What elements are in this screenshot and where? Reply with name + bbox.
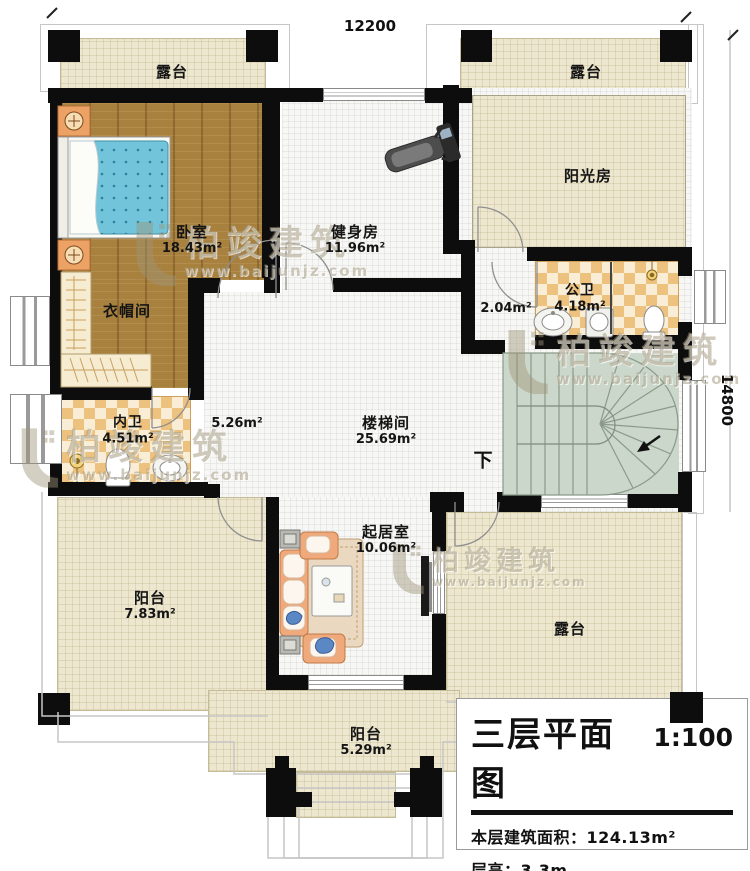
terrace-bottom-right-floor [446, 512, 682, 702]
room-area: 4.51m² [102, 432, 153, 448]
room-label-public-bath: 公卫 4.18m² [554, 283, 605, 316]
room-area: 2.04m² [480, 301, 531, 317]
balcony-bottom-floor [208, 690, 460, 772]
wall-hall-left [461, 254, 475, 354]
room-name: 露台 [554, 620, 586, 638]
wall-stair-bottom-mid [497, 492, 541, 512]
title-row: 三层平面图 1:100 [471, 707, 733, 815]
room-label-corridor-area: 5.26m² [211, 416, 262, 432]
room-area: 5.29m² [340, 743, 391, 759]
floor-area-row: 本层建筑面积：124.13m² [471, 824, 733, 848]
window-living-right-slider [433, 551, 445, 614]
stair-floor [503, 353, 679, 495]
floor-height-value: 3.3m [521, 861, 568, 871]
wall-private-bath-top-right [188, 386, 204, 400]
wall-public-bath-bottom [535, 335, 692, 349]
room-label-terrace-top-left: 露台 [156, 63, 188, 81]
room-label-private-bath: 内卫 4.51m² [102, 415, 153, 448]
plan-scale: 1:100 [653, 723, 733, 752]
window-left-private-bath [10, 394, 62, 464]
column-bottom-left [38, 693, 70, 725]
window-public-bath-right [694, 270, 726, 324]
column-top-right-b [660, 30, 692, 62]
room-label-hall-area: 2.04m² [480, 301, 531, 317]
floor-area-label: 本层建筑面积： [471, 828, 587, 847]
room-label-terrace-top-right: 露台 [570, 63, 602, 81]
room-area: 10.06m² [356, 541, 416, 557]
wall-gym-top-left [280, 88, 323, 102]
room-label-balcony-left: 阳台 7.83m² [124, 589, 175, 623]
wall-living-right-top [432, 505, 446, 551]
eave-frame-bottom-right [682, 512, 697, 704]
room-area: 18.43m² [162, 241, 222, 257]
room-name: 露台 [156, 63, 188, 81]
wall-bedroom-bottom-left [188, 278, 220, 293]
room-name: 衣帽间 [103, 302, 151, 320]
wall-living-bottom-right [404, 675, 446, 690]
column-title-block [670, 692, 703, 723]
room-name: 健身房 [325, 223, 385, 241]
window-stair-bottom [541, 494, 628, 508]
floor-area-value: 124.13m² [587, 828, 676, 847]
room-area: 7.83m² [124, 607, 175, 623]
closet-floor [61, 280, 189, 388]
floor-height-row: 层高：3.3m [471, 857, 733, 871]
stair-down-label: 下 [473, 446, 492, 473]
room-label-bedroom: 卧室 18.43m² [162, 223, 222, 257]
wall-stair-top [461, 340, 505, 354]
wall-private-bath-bottom [48, 482, 208, 496]
wall-private-bath-top-left [57, 386, 152, 400]
wall-living-left [266, 497, 279, 677]
column-top-right-a [461, 30, 492, 62]
wall-gym-bottom [333, 278, 472, 292]
room-label-sunroom: 阳光房 [564, 167, 612, 185]
wall-bedroom-bottom-right [264, 278, 280, 293]
room-label-living: 起居室 10.06m² [356, 523, 416, 557]
dimension-top: 12200 [344, 17, 396, 35]
room-label-terrace-bottom-right: 露台 [554, 620, 586, 638]
room-name: 内卫 [102, 415, 153, 432]
title-block: 三层平面图 1:100 本层建筑面积：124.13m² 层高：3.3m [456, 698, 748, 850]
window-stair-right [682, 380, 706, 472]
wall-stair-right-top [678, 346, 692, 380]
window-living-bottom [308, 675, 404, 690]
dimension-right: 14800 [718, 374, 736, 426]
room-name: 阳台 [340, 725, 391, 743]
room-name: 阳光房 [564, 167, 612, 185]
wall-gym-right [443, 85, 459, 247]
wall-bedroom-right [262, 88, 280, 278]
balcony-bottom-tongue-floor [296, 772, 396, 818]
column-top-left-a [48, 30, 80, 62]
floor-plan: 柏竣建筑www.baijunjz.com 柏竣建筑www.baijunjz.co… [0, 0, 750, 871]
room-area: 11.96m² [325, 241, 385, 257]
room-name: 卧室 [162, 223, 222, 241]
corridor-floor [204, 292, 284, 512]
room-label-closet: 衣帽间 [103, 302, 151, 320]
room-area: 5.26m² [211, 416, 262, 432]
floor-height-label: 层高： [471, 861, 521, 871]
room-area: 25.69m² [356, 432, 416, 448]
room-area: 4.18m² [554, 300, 605, 316]
room-label-gym: 健身房 11.96m² [325, 223, 385, 257]
room-name: 露台 [570, 63, 602, 81]
room-label-balcony-bottom: 阳台 5.29m² [340, 725, 391, 759]
room-name: 公卫 [554, 283, 605, 300]
room-name: 阳台 [124, 589, 175, 607]
wall-public-bath-top [527, 247, 692, 261]
wall-stair-bottom-right [628, 494, 692, 508]
wall-gym-right-jog [443, 240, 475, 254]
wall-corridor-bottom [204, 484, 220, 498]
room-name: 楼梯间 [356, 414, 416, 432]
wall-bedroom-top [48, 88, 263, 103]
wall-living-bottom-left [266, 675, 308, 690]
wall-closet-right [188, 293, 204, 388]
window-left-closet [10, 296, 50, 366]
column-top-left-b [246, 30, 278, 62]
room-name: 起居室 [356, 523, 416, 541]
room-label-stairwell: 楼梯间 25.69m² [356, 414, 416, 448]
plan-title: 三层平面图 [471, 707, 639, 805]
window-gym-top [323, 88, 425, 101]
wall-living-right-bottom [432, 614, 446, 676]
wall-public-bath-right-top [678, 250, 692, 276]
